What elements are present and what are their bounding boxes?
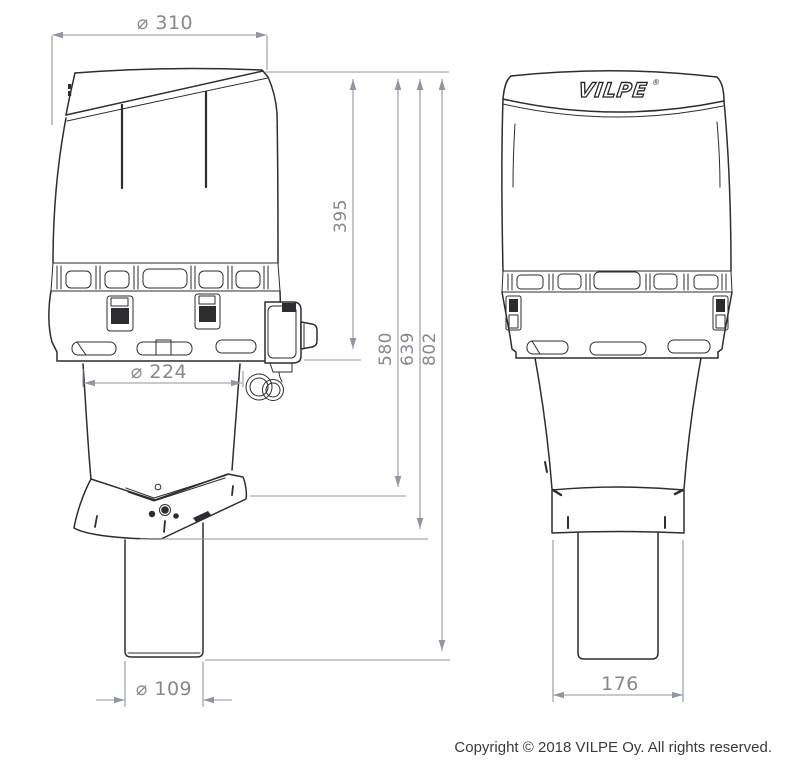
side-view-hood (66, 69, 277, 121)
vent-slot (517, 275, 543, 289)
flange-slot (216, 340, 256, 353)
dim-housing-diameter: ⌀ 224 (83, 361, 243, 387)
dim-pipe-diameter: ⌀ 109 (96, 661, 232, 707)
flange-slot (668, 340, 710, 353)
neck-tick (545, 462, 547, 472)
front-view-base-collar (552, 487, 684, 533)
side-view-flange (49, 291, 281, 361)
housing-seam (513, 124, 515, 187)
dim-total-height-label: 802 (420, 332, 440, 366)
brand-logo-text: VILPE (577, 78, 649, 102)
hood-edge-mark (68, 91, 71, 96)
dim-upper-height: 395 (304, 79, 361, 360)
dim-housing-diameter-label: ⌀ 224 (131, 361, 187, 383)
dim-base-width-label: 176 (601, 673, 639, 695)
dim-upper-height-label: 395 (331, 199, 351, 233)
screw (155, 484, 161, 490)
vent-slot (199, 271, 223, 288)
box-foot (270, 363, 292, 372)
vilpe-logo: VILPE ® (577, 78, 661, 102)
front-view-vent-band (502, 271, 732, 292)
dim-cap-diameter-label: ⌀ 310 (137, 12, 193, 34)
vent-slot (66, 271, 91, 288)
housing-seam (717, 122, 720, 187)
dim-height-to-seal-top: 580 (250, 79, 406, 496)
side-view-pipe (125, 523, 203, 657)
roof-flashing (74, 474, 246, 539)
side-view-housing (53, 92, 278, 263)
vent-slot (558, 274, 581, 289)
drawing-canvas: VILPE ® (0, 0, 799, 770)
front-view-hood: VILPE ® (503, 71, 724, 117)
box-knob (301, 322, 317, 349)
technical-drawing: VILPE ® (0, 0, 799, 770)
front-view-flange (502, 292, 732, 358)
power-cable-loops (246, 374, 284, 401)
flange-slot (137, 342, 192, 355)
screw (161, 506, 169, 514)
dim-height-to-seal-top-label: 580 (376, 332, 396, 366)
registered-mark: ® (651, 78, 660, 87)
vent-slot (105, 271, 129, 288)
vent-slats (508, 274, 726, 290)
junction-box (265, 302, 317, 382)
box-cap (282, 303, 296, 312)
copyright-text: Copyright © 2018 VILPE Oy. All rights re… (454, 739, 772, 756)
vent-slot (594, 272, 640, 289)
vent-slot (694, 275, 718, 289)
screw (149, 511, 155, 517)
hood-edge-mark (68, 84, 71, 89)
vent-slot (143, 269, 187, 288)
vent-slot (236, 271, 260, 288)
dim-pipe-diameter-label: ⌀ 109 (136, 678, 192, 700)
vent-slot (654, 274, 677, 289)
dim-total-height: 802 (205, 79, 450, 660)
front-view-pipe (578, 520, 658, 659)
dim-height-to-seal-bottom-label: 639 (398, 332, 418, 366)
front-view-housing (502, 99, 731, 271)
front-view-neck (535, 358, 701, 489)
flange-slot (590, 342, 646, 355)
screw (173, 513, 179, 519)
front-view: VILPE ® (502, 71, 732, 659)
side-view-vent-band (51, 263, 280, 291)
